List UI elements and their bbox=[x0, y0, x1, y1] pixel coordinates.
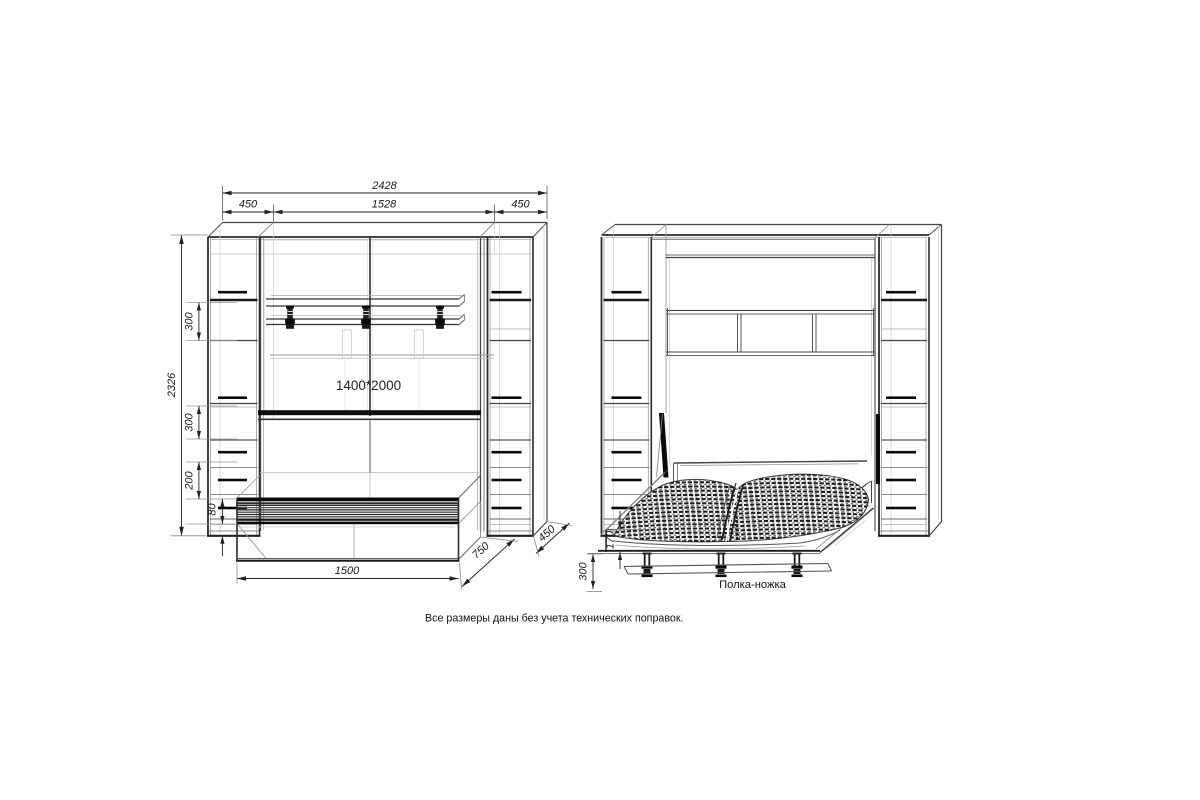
svg-text:300: 300 bbox=[578, 561, 590, 580]
svg-text:1500: 1500 bbox=[335, 565, 360, 577]
svg-text:300: 300 bbox=[184, 412, 196, 431]
svg-text:1528: 1528 bbox=[372, 199, 397, 211]
svg-text:2326: 2326 bbox=[166, 372, 178, 398]
svg-text:450: 450 bbox=[511, 199, 530, 211]
svg-text:2428: 2428 bbox=[371, 180, 397, 192]
svg-text:170: 170 bbox=[605, 530, 617, 549]
svg-text:Все размеры даны без учета тех: Все размеры даны без учета технических п… bbox=[425, 613, 684, 625]
svg-text:1400*2000: 1400*2000 bbox=[336, 378, 401, 393]
svg-text:200: 200 bbox=[184, 470, 196, 490]
svg-text:80: 80 bbox=[207, 503, 219, 516]
svg-text:450: 450 bbox=[239, 199, 258, 211]
svg-text:Полка-ножка: Полка-ножка bbox=[719, 579, 787, 591]
svg-text:300: 300 bbox=[184, 311, 196, 330]
